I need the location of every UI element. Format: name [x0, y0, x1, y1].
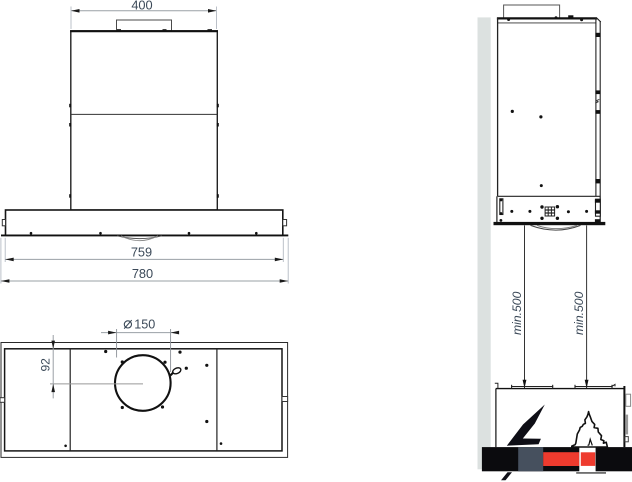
svg-text:759: 759: [131, 245, 152, 260]
svg-text:780: 780: [132, 266, 153, 281]
svg-text:min.500: min.500: [510, 291, 524, 335]
svg-text:min.500: min.500: [572, 291, 586, 335]
svg-text:150: 150: [134, 318, 155, 332]
svg-text:92: 92: [39, 358, 53, 372]
